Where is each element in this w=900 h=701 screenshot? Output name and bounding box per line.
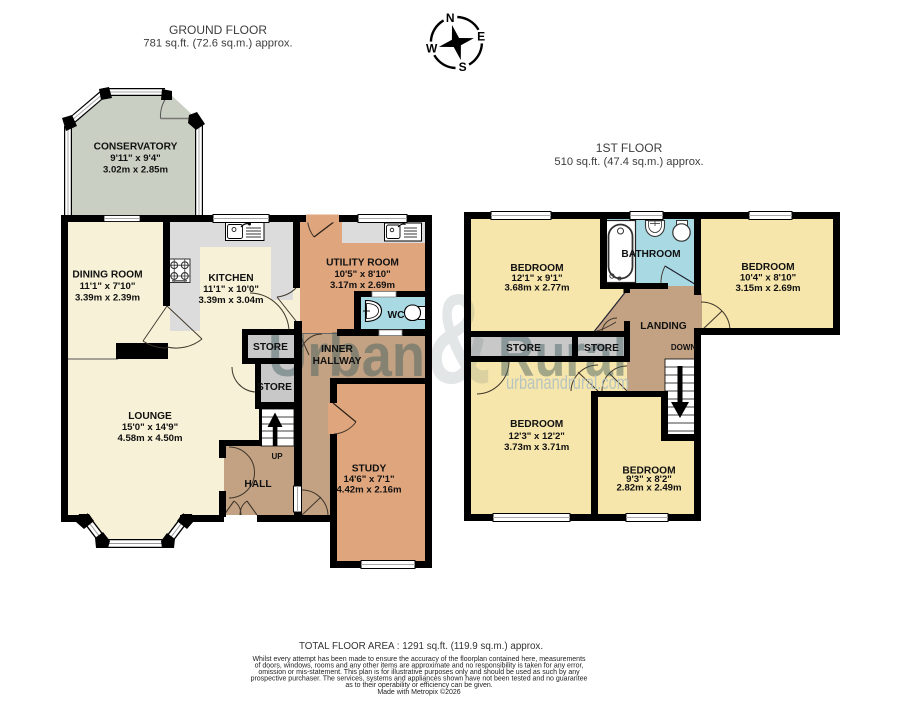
svg-text:&: &	[427, 268, 491, 411]
svg-text:urbanandrural.com: urbanandrural.com	[506, 373, 629, 394]
svg-text:11'1" x 10'0": 11'1" x 10'0"	[203, 284, 259, 295]
svg-text:BATHROOM: BATHROOM	[621, 249, 680, 260]
svg-text:3.02m x 2.85m: 3.02m x 2.85m	[103, 165, 168, 176]
svg-text:12'3" x 12'2": 12'3" x 12'2"	[509, 431, 565, 442]
svg-text:as to their operability or eff: as to their operability or efficiency ca…	[345, 682, 492, 689]
svg-text:3.17m x 2.69m: 3.17m x 2.69m	[330, 280, 395, 291]
svg-text:DINING ROOM: DINING ROOM	[72, 270, 142, 281]
svg-text:E: E	[477, 29, 485, 43]
svg-text:STORE: STORE	[257, 382, 292, 393]
svg-text:510 sq.ft. (47.4 sq.m.) approx: 510 sq.ft. (47.4 sq.m.) approx.	[554, 156, 703, 168]
svg-text:3.73m x 3.71m: 3.73m x 3.71m	[504, 442, 569, 453]
svg-text:GROUND FLOOR: GROUND FLOOR	[169, 23, 267, 37]
svg-text:LOUNGE: LOUNGE	[128, 411, 172, 422]
svg-text:1ST FLOOR: 1ST FLOOR	[596, 141, 663, 155]
svg-text:DOWN: DOWN	[671, 343, 697, 352]
svg-text:10'4" x 8'10": 10'4" x 8'10"	[740, 273, 796, 284]
svg-text:9'11" x 9'4": 9'11" x 9'4"	[110, 153, 160, 164]
svg-text:UTILITY ROOM: UTILITY ROOM	[326, 258, 399, 269]
svg-text:STORE: STORE	[506, 343, 541, 354]
svg-text:4.58m x 4.50m: 4.58m x 4.50m	[117, 433, 182, 444]
svg-text:15'0" x 14'9": 15'0" x 14'9"	[122, 422, 178, 433]
svg-text:10'5" x 8'10": 10'5" x 8'10"	[334, 269, 390, 280]
svg-text:W: W	[426, 42, 438, 56]
svg-text:BEDROOM: BEDROOM	[510, 419, 563, 430]
svg-text:11'1" x 7'10": 11'1" x 7'10"	[80, 281, 136, 292]
svg-text:INNER: INNER	[321, 344, 353, 355]
svg-text:N: N	[446, 11, 455, 25]
svg-text:S: S	[459, 60, 467, 74]
svg-text:KITCHEN: KITCHEN	[208, 273, 253, 284]
svg-text:LANDING: LANDING	[640, 321, 686, 332]
svg-text:3.68m x 2.77m: 3.68m x 2.77m	[504, 283, 569, 294]
svg-text:3.39m x 2.39m: 3.39m x 2.39m	[75, 293, 140, 304]
svg-text:Made with Metropix ©2026: Made with Metropix ©2026	[377, 688, 460, 696]
svg-text:STORE: STORE	[584, 343, 619, 354]
svg-text:TOTAL FLOOR AREA : 1291 sq.ft.: TOTAL FLOOR AREA : 1291 sq.ft. (119.9 sq…	[299, 641, 543, 652]
svg-text:CONSERVATORY: CONSERVATORY	[94, 142, 178, 153]
svg-text:UP: UP	[271, 452, 283, 461]
svg-text:781 sq.ft. (72.6 sq.m.) approx: 781 sq.ft. (72.6 sq.m.) approx.	[143, 38, 292, 50]
svg-text:HALL: HALL	[244, 479, 271, 490]
svg-text:3.39m x 3.04m: 3.39m x 3.04m	[198, 295, 263, 306]
svg-text:4.42m x 2.16m: 4.42m x 2.16m	[336, 485, 401, 496]
svg-text:STUDY: STUDY	[352, 464, 387, 475]
svg-text:WC: WC	[388, 310, 406, 321]
svg-text:3.15m x 2.69m: 3.15m x 2.69m	[735, 283, 800, 294]
svg-text:14'6" x 7'1": 14'6" x 7'1"	[343, 474, 394, 485]
svg-text:HALLWAY: HALLWAY	[313, 356, 362, 367]
svg-text:2.82m x 2.49m: 2.82m x 2.49m	[616, 483, 681, 494]
svg-text:BEDROOM: BEDROOM	[741, 262, 794, 273]
svg-text:STORE: STORE	[253, 342, 288, 353]
